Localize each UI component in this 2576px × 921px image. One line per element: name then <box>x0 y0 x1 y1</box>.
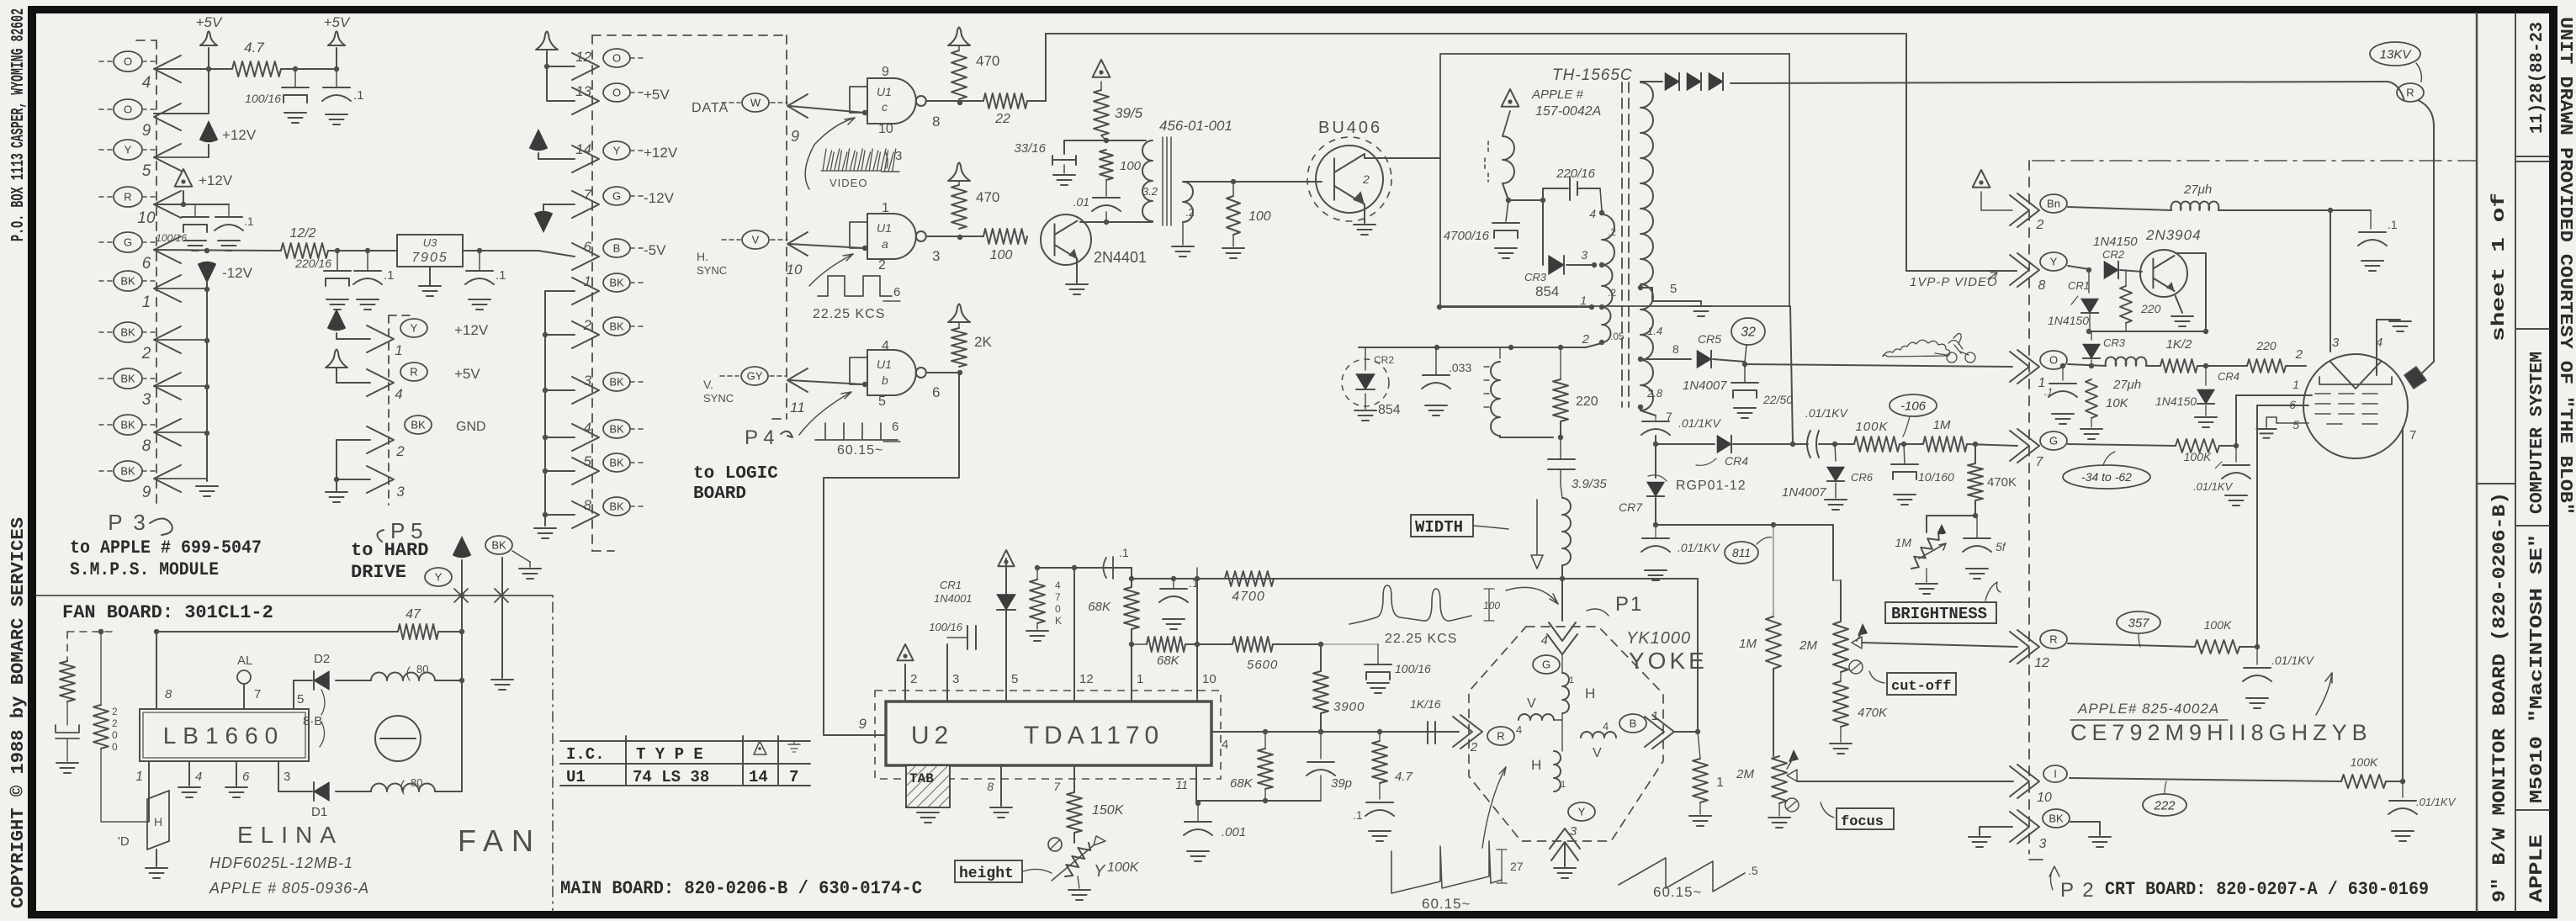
svg-text:100/16: 100/16 <box>929 621 963 633</box>
svg-text:APPLE: APPLE <box>2526 834 2547 902</box>
svg-text:1: 1 <box>142 294 151 311</box>
svg-text:9: 9 <box>882 65 889 79</box>
svg-text:6: 6 <box>584 239 592 255</box>
svg-text:O: O <box>124 103 132 116</box>
svg-text:2M: 2M <box>1736 767 1754 781</box>
svg-text:BK: BK <box>120 326 135 339</box>
svg-text:22.25 KCS: 22.25 KCS <box>1385 632 1457 646</box>
svg-text:to HARD: to HARD <box>351 540 428 561</box>
svg-text:BK: BK <box>120 275 135 288</box>
svg-text:10K: 10K <box>2106 396 2129 410</box>
svg-text:0: 0 <box>112 729 118 741</box>
svg-text:+12V: +12V <box>454 322 489 338</box>
svg-text:3: 3 <box>142 391 151 409</box>
svg-text:TAB: TAB <box>909 771 934 786</box>
svg-text:P1: P1 <box>1615 593 1643 616</box>
svg-text:RGP01-12: RGP01-12 <box>1676 479 1746 493</box>
svg-text:-34 to -62: -34 to -62 <box>2081 470 2132 484</box>
svg-text:BK: BK <box>609 277 624 289</box>
svg-text:100: 100 <box>1120 159 1142 173</box>
svg-text:CE792M9HII8GHZYB: CE792M9HII8GHZYB <box>2070 720 2372 745</box>
svg-text:2: 2 <box>1470 740 1478 754</box>
svg-text:D2: D2 <box>314 652 330 666</box>
svg-text:2: 2 <box>112 706 118 717</box>
svg-text:3: 3 <box>2332 336 2340 350</box>
svg-text:to LOGIC: to LOGIC <box>693 464 778 484</box>
svg-text:32: 32 <box>1741 326 1756 340</box>
svg-text:U1: U1 <box>877 85 892 98</box>
svg-text:R: R <box>1497 730 1504 743</box>
svg-text:2N4401: 2N4401 <box>1094 249 1147 266</box>
svg-text:10: 10 <box>878 122 893 136</box>
svg-text:-12V: -12V <box>222 265 253 281</box>
svg-text:Y: Y <box>2050 256 2058 268</box>
svg-text:7: 7 <box>584 187 592 203</box>
svg-text:100K: 100K <box>2204 618 2232 632</box>
svg-text:100/16: 100/16 <box>245 92 281 105</box>
svg-text:.01/1KV: .01/1KV <box>2416 796 2457 808</box>
svg-text:3: 3 <box>396 484 405 500</box>
svg-text:6: 6 <box>893 285 900 299</box>
svg-text:BRIGHTNESS: BRIGHTNESS <box>1891 605 1987 623</box>
svg-text:8: 8 <box>1672 342 1679 356</box>
svg-text:470: 470 <box>976 189 999 205</box>
svg-text:5: 5 <box>878 394 886 409</box>
svg-text:CR1: CR1 <box>2068 279 2090 292</box>
svg-text:V.: V. <box>703 378 713 391</box>
svg-text:4: 4 <box>395 386 402 402</box>
svg-text:.01/1KV: .01/1KV <box>2271 654 2314 667</box>
svg-text:O: O <box>124 56 132 68</box>
svg-text:4: 4 <box>1541 633 1548 648</box>
svg-text:'D: 'D <box>118 834 130 849</box>
svg-text:+5V: +5V <box>196 14 223 30</box>
svg-text:.2: .2 <box>1608 287 1616 299</box>
svg-text:P 3: P 3 <box>108 510 148 535</box>
svg-text:HDF6025L-12MB-1: HDF6025L-12MB-1 <box>209 855 353 871</box>
svg-text:10/160: 10/160 <box>1918 470 1954 484</box>
svg-text:7: 7 <box>254 687 261 701</box>
svg-text:height: height <box>959 865 1014 882</box>
svg-text:.01/1KV: .01/1KV <box>1805 406 1848 420</box>
svg-text:1VP-P VIDEO: 1VP-P VIDEO <box>1910 275 1998 289</box>
svg-text:ELINA: ELINA <box>237 822 343 848</box>
svg-text:60.15~: 60.15~ <box>1653 884 1702 900</box>
svg-text:.1: .1 <box>2044 386 2053 398</box>
svg-text:TH-1565C: TH-1565C <box>1552 66 1633 84</box>
svg-text:33/16: 33/16 <box>1014 141 1046 156</box>
svg-text:BK: BK <box>2049 812 2064 825</box>
svg-text:5: 5 <box>142 162 151 180</box>
svg-text:1: 1 <box>1580 294 1587 307</box>
svg-text:8·B: 8·B <box>303 714 322 728</box>
svg-text:68K: 68K <box>1157 654 1180 668</box>
svg-text:K: K <box>1055 615 1062 627</box>
svg-text:BK: BK <box>411 419 426 431</box>
svg-text:CR1: CR1 <box>940 579 962 591</box>
svg-text:1N4007: 1N4007 <box>1683 378 1727 393</box>
svg-text:7: 7 <box>2036 455 2044 469</box>
svg-text:5600: 5600 <box>1247 658 1278 672</box>
svg-text:T Y P E: T Y P E <box>636 745 703 764</box>
svg-text:470: 470 <box>976 53 999 69</box>
svg-text:BK: BK <box>609 423 624 436</box>
svg-text:12: 12 <box>1079 672 1094 686</box>
svg-text:100K: 100K <box>1855 420 1888 434</box>
svg-text:H: H <box>1531 757 1541 773</box>
svg-text:.01: .01 <box>1073 195 1089 209</box>
svg-text:220: 220 <box>1576 394 1598 409</box>
svg-text:APPLE# 825-4002A: APPLE# 825-4002A <box>2077 701 2219 717</box>
svg-text:1K/2: 1K/2 <box>2166 337 2193 352</box>
svg-text:GY: GY <box>747 370 763 383</box>
svg-text:-106: -106 <box>1900 399 1927 413</box>
svg-text:Bn: Bn <box>2047 198 2060 210</box>
svg-text:27μh: 27μh <box>2183 183 2212 197</box>
svg-text:1.4: 1.4 <box>1647 325 1662 337</box>
svg-text:22: 22 <box>994 112 1010 126</box>
svg-text:B: B <box>1630 717 1637 730</box>
svg-text:R: R <box>410 366 417 378</box>
svg-text:8: 8 <box>987 780 994 793</box>
svg-text:10: 10 <box>137 209 156 227</box>
svg-text:Y: Y <box>613 145 621 157</box>
svg-text:.1: .1 <box>353 88 364 103</box>
svg-text:G: G <box>612 190 621 203</box>
svg-text:74 LS 38: 74 LS 38 <box>633 768 709 786</box>
svg-text:811: 811 <box>1732 546 1751 559</box>
svg-text:TDA1170: TDA1170 <box>1024 722 1164 749</box>
svg-text:a: a <box>882 237 888 251</box>
svg-text:CR2: CR2 <box>2102 248 2125 261</box>
svg-text:BOARD: BOARD <box>693 484 746 504</box>
svg-text:.01/1KV: .01/1KV <box>1678 416 1721 430</box>
svg-text:3900: 3900 <box>1333 700 1365 714</box>
svg-text:1M: 1M <box>1739 637 1757 651</box>
svg-text:CR3: CR3 <box>2103 336 2126 349</box>
svg-text:3: 3 <box>1581 248 1587 262</box>
svg-text:c: c <box>882 100 888 114</box>
svg-text:to APPLE # 699-5047: to APPLE # 699-5047 <box>70 537 262 558</box>
svg-text:2: 2 <box>583 317 592 333</box>
svg-text:5: 5 <box>1670 282 1677 296</box>
svg-text:11: 11 <box>790 400 805 416</box>
svg-text:CR7: CR7 <box>1619 500 1643 514</box>
svg-text:.1: .1 <box>1119 546 1129 559</box>
svg-text:80: 80 <box>416 663 428 675</box>
svg-text:AL: AL <box>237 654 252 668</box>
svg-text:2K: 2K <box>974 334 992 350</box>
svg-text:.5: .5 <box>1748 864 1758 877</box>
svg-text:CR6: CR6 <box>1851 471 1874 484</box>
svg-text:U3: U3 <box>423 236 437 249</box>
svg-text:220: 220 <box>2140 302 2161 315</box>
svg-text:COMPUTER SYSTEM: COMPUTER SYSTEM <box>2528 352 2547 514</box>
svg-text:4: 4 <box>584 420 591 436</box>
svg-text:W: W <box>750 97 761 109</box>
svg-text:O: O <box>612 87 621 99</box>
svg-text:YOKE: YOKE <box>1629 648 1708 674</box>
svg-text:.1: .1 <box>384 268 395 283</box>
svg-text:27: 27 <box>1510 860 1524 873</box>
svg-text:13KV: 13KV <box>2380 47 2413 61</box>
svg-text:2: 2 <box>141 345 151 363</box>
svg-text:4: 4 <box>882 339 889 353</box>
svg-text:1M: 1M <box>1933 418 1951 432</box>
svg-text:100K: 100K <box>2184 450 2212 463</box>
svg-text:4: 4 <box>142 74 151 92</box>
svg-text:5: 5 <box>2292 418 2299 431</box>
svg-text:470K: 470K <box>1858 706 1888 720</box>
svg-text:39/5: 39/5 <box>1115 105 1143 121</box>
svg-text:4: 4 <box>1516 723 1522 736</box>
svg-text:10: 10 <box>1202 672 1216 686</box>
svg-text:MAIN BOARD: 820-0206-B / 630-: MAIN BOARD: 820-0206-B / 630-0174-C <box>560 878 922 899</box>
svg-text:P 2: P 2 <box>2060 879 2096 902</box>
svg-text:+12V: +12V <box>644 145 678 161</box>
svg-text:7: 7 <box>1055 591 1061 603</box>
svg-text:H: H <box>154 815 162 828</box>
svg-text:U1: U1 <box>877 357 892 371</box>
svg-text:COPYRIGHT © 1988 by BOMARC S: COPYRIGHT © 1988 by BOMARC SERVICES <box>9 517 29 908</box>
svg-text:3: 3 <box>895 149 902 163</box>
svg-text:BU406: BU406 <box>1318 119 1382 137</box>
svg-text:100K: 100K <box>1107 860 1140 875</box>
svg-text:Y: Y <box>435 571 443 584</box>
svg-text:+5V: +5V <box>454 366 480 382</box>
svg-text:CR5: CR5 <box>1698 332 1721 346</box>
svg-text:.1: .1 <box>1353 808 1363 822</box>
svg-text:4.7: 4.7 <box>244 40 264 56</box>
svg-text:DRIVE: DRIVE <box>351 562 406 583</box>
svg-text:H: H <box>1585 685 1595 701</box>
svg-text:2: 2 <box>1582 332 1590 347</box>
svg-text:22.25 KCS: 22.25 KCS <box>813 307 885 321</box>
svg-text:3: 3 <box>284 770 290 784</box>
svg-text:4: 4 <box>1603 720 1609 733</box>
svg-text:1: 1 <box>1716 775 1724 790</box>
svg-text:V: V <box>1527 696 1536 711</box>
svg-text:3.2: 3.2 <box>1142 185 1158 198</box>
svg-text:2: 2 <box>878 258 886 273</box>
svg-text:5: 5 <box>1011 672 1018 686</box>
svg-text:SYNC: SYNC <box>697 264 727 277</box>
svg-text:8: 8 <box>165 687 172 701</box>
svg-text:8: 8 <box>932 114 940 130</box>
svg-text:9: 9 <box>791 128 799 145</box>
svg-text:100: 100 <box>1483 600 1500 611</box>
svg-text:2: 2 <box>2036 218 2044 232</box>
svg-text:.1: .1 <box>244 214 254 228</box>
svg-text:157-0042A: 157-0042A <box>1535 104 1601 119</box>
svg-text:1N4150: 1N4150 <box>2093 235 2138 249</box>
svg-text:1N4007: 1N4007 <box>1782 485 1826 500</box>
svg-text:SYNC: SYNC <box>703 392 734 405</box>
svg-text:Y: Y <box>1578 806 1586 818</box>
svg-text:222: 222 <box>2153 798 2176 812</box>
svg-text:BK: BK <box>120 419 135 431</box>
svg-text:U1: U1 <box>566 768 586 786</box>
svg-text:1M: 1M <box>1895 536 1912 549</box>
svg-text:b: b <box>882 373 888 387</box>
svg-text:4700: 4700 <box>1232 590 1265 604</box>
svg-text:.01/1KV: .01/1KV <box>2193 480 2234 493</box>
svg-text:.1: .1 <box>2388 218 2398 231</box>
svg-text:B: B <box>613 242 621 255</box>
svg-text:100/16: 100/16 <box>156 232 187 244</box>
svg-text:9: 9 <box>859 716 867 732</box>
svg-text:220/16: 220/16 <box>294 257 331 270</box>
svg-text:10: 10 <box>2037 791 2052 805</box>
svg-text:2: 2 <box>1362 172 1370 186</box>
svg-text:.1: .1 <box>1558 780 1566 790</box>
svg-text:.1: .1 <box>1566 675 1574 685</box>
svg-text:150K: 150K <box>1092 803 1125 818</box>
svg-text:3: 3 <box>932 248 940 264</box>
svg-text:-12V: -12V <box>644 190 675 206</box>
svg-text:APPLE #: APPLE # <box>1531 87 1584 102</box>
svg-text:1: 1 <box>395 342 402 358</box>
svg-text:220/16: 220/16 <box>1556 167 1596 181</box>
svg-text:O: O <box>612 52 621 65</box>
svg-text:GND: GND <box>456 420 486 434</box>
svg-text:BK: BK <box>120 373 135 385</box>
svg-text:Y: Y <box>1094 862 1106 881</box>
svg-text:.2: .2 <box>1608 226 1616 238</box>
svg-text:FAN BOARD: 301CL1-2: FAN BOARD: 301CL1-2 <box>62 602 273 623</box>
svg-text:4700/16: 4700/16 <box>1444 229 1490 243</box>
svg-text:CR2: CR2 <box>1374 354 1394 366</box>
svg-text:.001: .001 <box>1222 825 1246 839</box>
svg-text:2: 2 <box>910 672 917 686</box>
svg-text:P 4: P 4 <box>745 426 775 449</box>
svg-text:.1: .1 <box>496 268 506 283</box>
svg-text:12: 12 <box>575 49 591 65</box>
svg-text:LB1660: LB1660 <box>163 723 285 749</box>
svg-text:8: 8 <box>584 497 592 513</box>
svg-text:P.O. BOX 1113: P.O. BOX 1113 <box>9 153 29 241</box>
svg-text:V: V <box>752 234 760 246</box>
svg-text:WIDTH: WIDTH <box>1415 518 1463 537</box>
svg-text:4: 4 <box>1222 738 1228 752</box>
svg-text:68K: 68K <box>1230 776 1254 791</box>
svg-text:4: 4 <box>1055 580 1061 591</box>
svg-text:9" B/W MONITOR BOARD (820-0206: 9" B/W MONITOR BOARD (820-0206-B) <box>2489 492 2510 902</box>
svg-text:3: 3 <box>952 672 959 686</box>
svg-text:FAN: FAN <box>458 823 542 858</box>
svg-text:100/16: 100/16 <box>1395 662 1431 675</box>
svg-text:.2: .2 <box>1185 206 1195 219</box>
svg-text:13: 13 <box>575 83 591 99</box>
svg-text:854: 854 <box>1535 283 1559 299</box>
svg-text:CRT BOARD: 820-0207-A / 630-0: CRT BOARD: 820-0207-A / 630-0169 <box>2105 879 2429 900</box>
svg-text:1N4150: 1N4150 <box>2048 314 2089 327</box>
svg-text:VIDEO: VIDEO <box>830 177 867 189</box>
svg-text:G: G <box>124 236 132 249</box>
svg-text:1: 1 <box>2292 378 2299 391</box>
svg-text:+12V: +12V <box>222 127 257 143</box>
svg-text:14: 14 <box>575 141 591 157</box>
svg-text:14: 14 <box>749 768 768 786</box>
svg-text:4: 4 <box>195 770 202 784</box>
svg-text:+5V: +5V <box>644 87 670 103</box>
svg-text:12: 12 <box>2034 656 2049 670</box>
svg-text:CASPER, WYOMING 82602: CASPER, WYOMING 82602 <box>9 8 29 148</box>
svg-text:6: 6 <box>892 420 898 434</box>
svg-text:2M: 2M <box>1799 638 1817 653</box>
svg-text:R: R <box>2049 633 2057 646</box>
svg-text:D1: D1 <box>311 805 327 819</box>
svg-text:BK: BK <box>491 539 506 552</box>
svg-text:3: 3 <box>2039 837 2047 851</box>
svg-text:1: 1 <box>584 273 591 289</box>
svg-text:2: 2 <box>2295 347 2303 362</box>
svg-text:I.C.: I.C. <box>566 745 605 764</box>
svg-text:11)28(88-23: 11)28(88-23 <box>2528 22 2547 134</box>
svg-text:YK1000: YK1000 <box>1626 629 1691 648</box>
svg-text:854: 854 <box>1378 403 1401 417</box>
svg-text:100: 100 <box>1248 209 1271 224</box>
svg-text:1: 1 <box>1137 672 1143 686</box>
svg-text:+5V: +5V <box>324 14 351 30</box>
svg-text:6: 6 <box>932 384 940 400</box>
svg-text:39p: 39p <box>1331 776 1352 791</box>
svg-text:BK: BK <box>609 457 624 469</box>
svg-text:7: 7 <box>789 768 798 786</box>
svg-text:9: 9 <box>142 122 151 140</box>
svg-text:5: 5 <box>584 453 592 469</box>
svg-text:U1: U1 <box>877 221 892 235</box>
svg-text:0: 0 <box>112 741 118 753</box>
svg-text:-5V: -5V <box>644 242 666 258</box>
svg-text:focus: focus <box>1841 814 1884 830</box>
svg-text:100K: 100K <box>2351 755 2378 769</box>
svg-text:1K/16: 1K/16 <box>1410 697 1441 711</box>
svg-text:G: G <box>1542 659 1550 671</box>
svg-text:60.15~: 60.15~ <box>1422 896 1471 912</box>
svg-text:357: 357 <box>2128 616 2149 630</box>
svg-text:80: 80 <box>411 776 422 789</box>
svg-text:9: 9 <box>142 484 151 501</box>
svg-text:7: 7 <box>2409 428 2416 442</box>
svg-text:2N3904: 2N3904 <box>2145 227 2202 243</box>
svg-text:27μh: 27μh <box>2112 378 2141 392</box>
svg-text:M5010 "MacINTOSH SE": M5010 "MacINTOSH SE" <box>2528 534 2547 803</box>
svg-text:BK: BK <box>120 465 135 478</box>
svg-text:47: 47 <box>405 607 421 622</box>
svg-text:UNIT DRAWN PROVIDED COURTESY O: UNIT DRAWN PROVIDED COURTESY OF "THE BLO… <box>2555 17 2574 515</box>
svg-text:1: 1 <box>882 201 889 215</box>
svg-text:470K: 470K <box>1987 475 2017 490</box>
svg-text:2: 2 <box>112 717 118 729</box>
svg-text:68K: 68K <box>1088 600 1111 614</box>
svg-text:5: 5 <box>297 692 304 707</box>
svg-text:220: 220 <box>2255 339 2277 352</box>
svg-text:Y: Y <box>411 322 418 335</box>
svg-text:8: 8 <box>2038 278 2046 293</box>
svg-text:60.15~: 60.15~ <box>837 443 883 458</box>
svg-text:Y: Y <box>125 144 132 156</box>
svg-text:3.9/35: 3.9/35 <box>1572 477 1607 491</box>
svg-text:CR3: CR3 <box>1524 271 1547 283</box>
svg-text:U2: U2 <box>911 722 953 749</box>
svg-text:22/50: 22/50 <box>1762 393 1793 406</box>
svg-text:CR4: CR4 <box>1725 454 1748 468</box>
svg-text:7: 7 <box>1053 780 1061 793</box>
svg-text:H.: H. <box>697 250 708 263</box>
svg-text:12/2: 12/2 <box>289 226 315 241</box>
svg-text:1: 1 <box>135 770 143 784</box>
